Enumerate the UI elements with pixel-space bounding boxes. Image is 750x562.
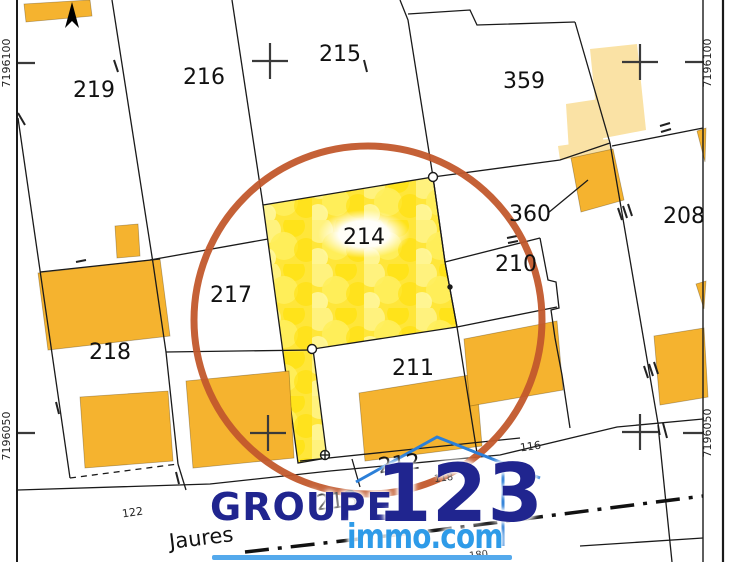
parcel-label-208: 208 xyxy=(663,204,705,229)
parcel-label-215: 215 xyxy=(319,42,361,67)
parcel-label-216: 216 xyxy=(183,65,225,90)
parcel-label-218: 218 xyxy=(89,340,131,365)
parcel-label-214: 214 xyxy=(343,225,385,250)
coord-left-top: 7196100 xyxy=(0,39,13,88)
parcel-label-360: 360 xyxy=(509,202,551,227)
watermark-immo-text: immo.com xyxy=(347,520,503,554)
cadastral-map[interactable]: 219 216 215 359 360 208 210 217 214 218 … xyxy=(0,0,750,562)
coord-left-bottom: 7196050 xyxy=(0,412,13,461)
coord-right-bottom: 7196050 xyxy=(701,409,714,458)
coord-right-top: 7196100 xyxy=(701,39,714,88)
map-canvas: 219 216 215 359 360 208 210 217 214 218 … xyxy=(0,0,750,562)
parcel-label-359: 359 xyxy=(503,69,545,94)
parcel-label-211: 211 xyxy=(392,356,434,381)
parcel-label-217: 217 xyxy=(210,283,252,308)
parcel-label-210: 210 xyxy=(495,252,537,277)
watermark-underline xyxy=(212,555,512,560)
parcel-label-219: 219 xyxy=(73,78,115,103)
